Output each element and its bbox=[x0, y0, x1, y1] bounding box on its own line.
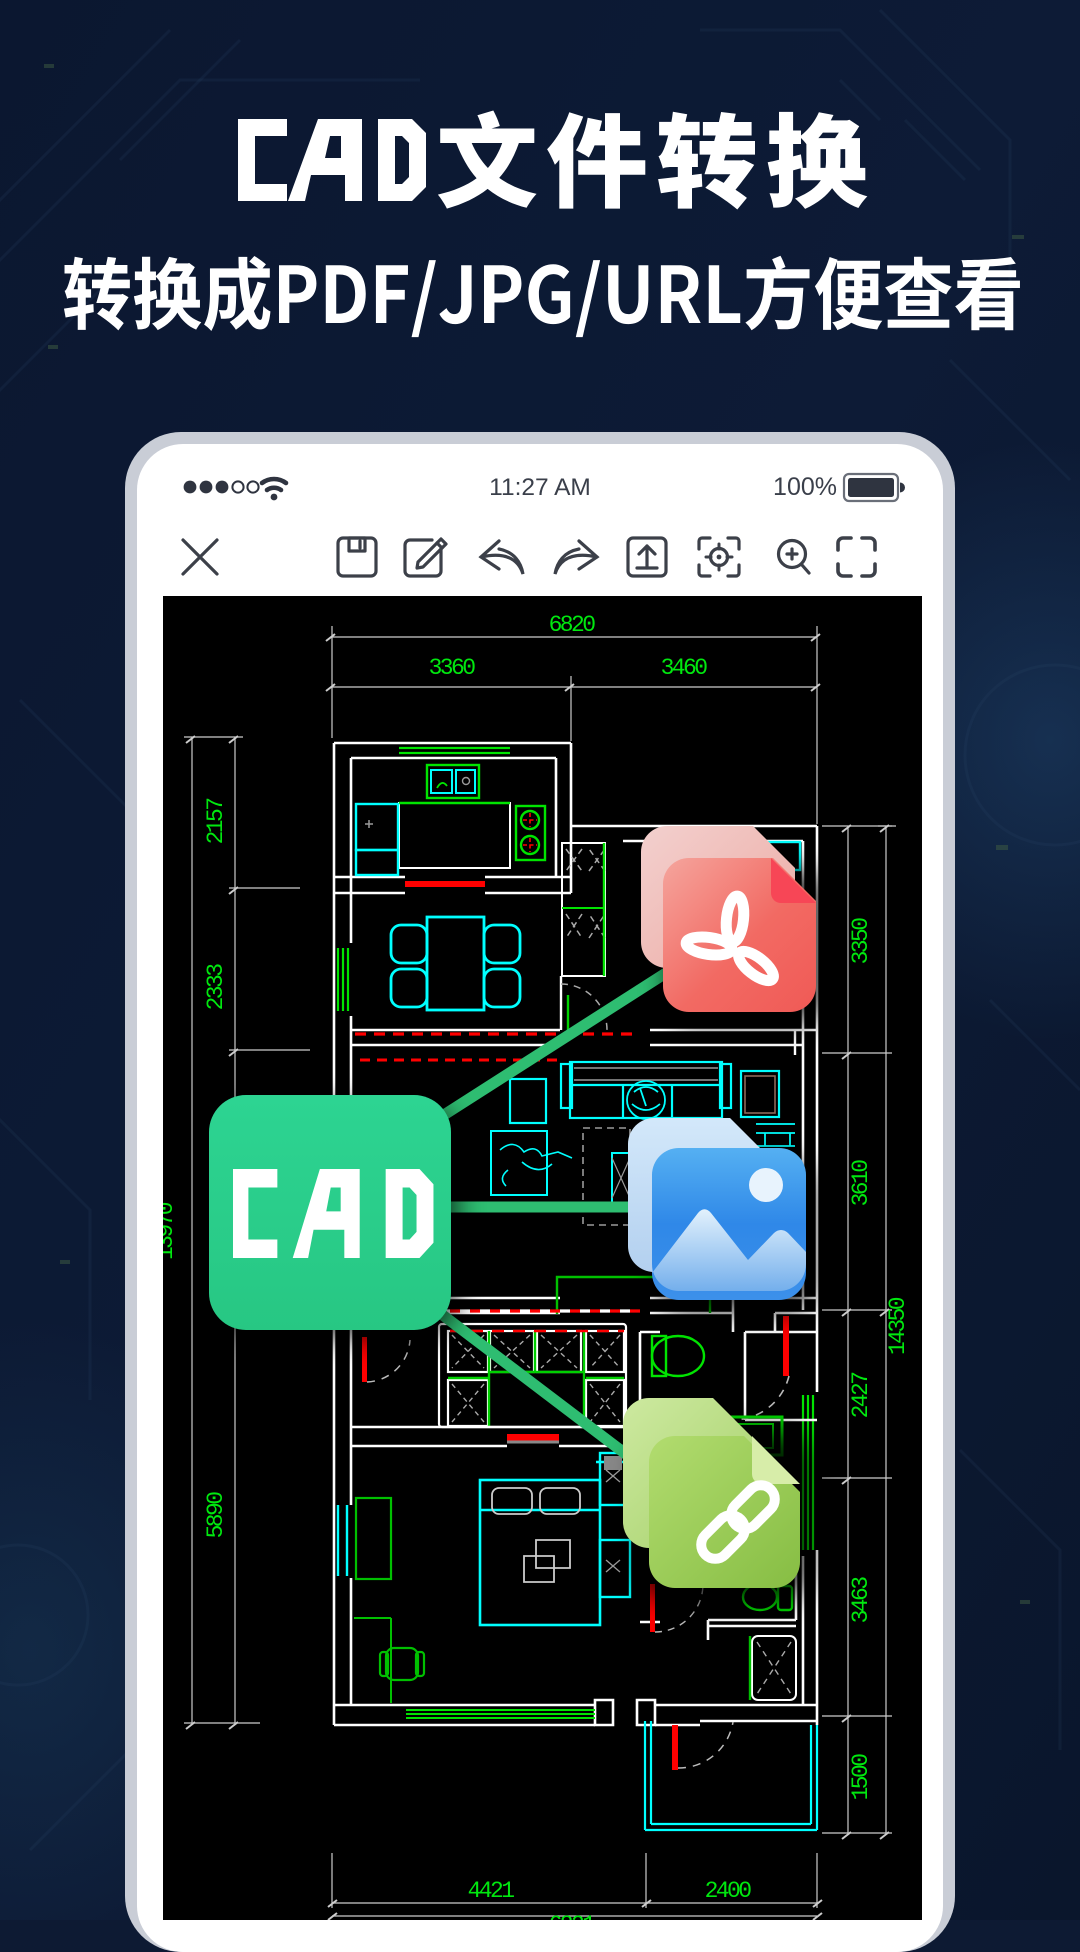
svg-text:3463: 3463 bbox=[848, 1577, 874, 1624]
svg-text:14350: 14350 bbox=[885, 1297, 911, 1355]
svg-text:6820: 6820 bbox=[549, 612, 596, 638]
svg-text:3610: 3610 bbox=[848, 1160, 874, 1207]
svg-text:6821: 6821 bbox=[549, 1912, 596, 1920]
svg-text:5890: 5890 bbox=[203, 1492, 229, 1539]
svg-text:13970: 13970 bbox=[163, 1202, 179, 1260]
svg-text:3460: 3460 bbox=[661, 655, 708, 681]
svg-text:2427: 2427 bbox=[848, 1373, 874, 1419]
svg-text:2157: 2157 bbox=[203, 799, 229, 845]
svg-text:11:27 AM: 11:27 AM bbox=[489, 474, 591, 501]
svg-text:1500: 1500 bbox=[848, 1754, 874, 1801]
svg-text:100%: 100% bbox=[773, 473, 837, 501]
svg-text:3350: 3350 bbox=[848, 918, 874, 965]
svg-text:2400: 2400 bbox=[705, 1878, 752, 1904]
svg-text:3360: 3360 bbox=[429, 655, 476, 681]
svg-text:2333: 2333 bbox=[203, 964, 229, 1011]
svg-text:4421: 4421 bbox=[468, 1878, 515, 1904]
